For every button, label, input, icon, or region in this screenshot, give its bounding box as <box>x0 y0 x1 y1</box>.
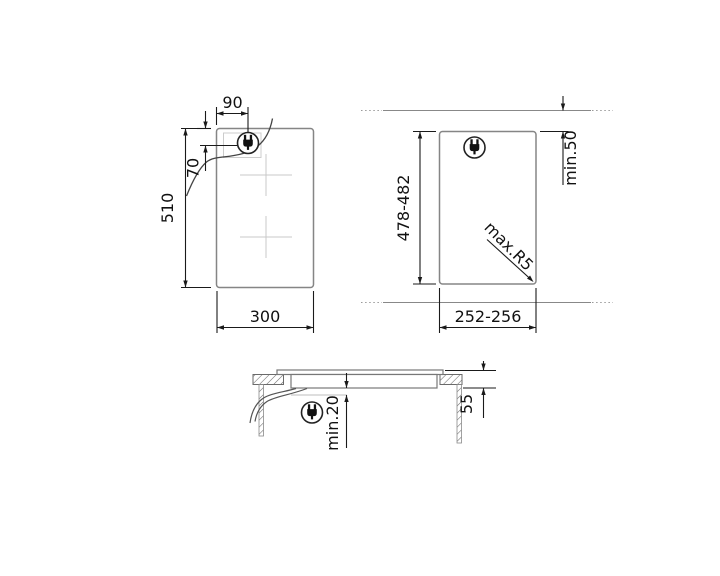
hob-outline <box>217 129 314 288</box>
dim-hob-width-label: 300 <box>250 307 281 326</box>
power-cable <box>250 389 307 424</box>
worktop-section-right <box>440 375 462 385</box>
dim-cutout-height-label: 478-482 <box>394 175 413 242</box>
hob-top-view: 90 70 510 300 <box>158 93 314 333</box>
technical-drawing-svg: 90 70 510 300 <box>0 0 720 576</box>
power-plug-icon <box>302 402 323 423</box>
dim-cutout-width-label: 252-256 <box>455 307 522 326</box>
dim-hob-height-label: 510 <box>158 193 177 224</box>
worktop-cutout-view: 478-482 min.50 max.R5 252-256 <box>361 96 613 333</box>
dim-plug-offset-y-label: 70 <box>184 158 203 178</box>
dim-rear-clearance-label: min.50 <box>561 130 580 186</box>
dim-bottom-clearance-label: min.20 <box>323 395 342 451</box>
hob-body <box>291 375 437 389</box>
power-plug-icon <box>464 137 485 158</box>
dim-plug-offset-x-label: 90 <box>222 93 242 112</box>
hob-installation-diagram: 90 70 510 300 <box>0 0 720 576</box>
cabinet-wall-left <box>259 385 264 437</box>
hob-glass-top <box>277 370 443 375</box>
worktop-section-left <box>253 375 284 385</box>
power-plug-icon <box>238 133 259 154</box>
side-section-view: min.20 55 <box>250 361 496 451</box>
dim-built-in-depth-label: 55 <box>457 394 476 414</box>
